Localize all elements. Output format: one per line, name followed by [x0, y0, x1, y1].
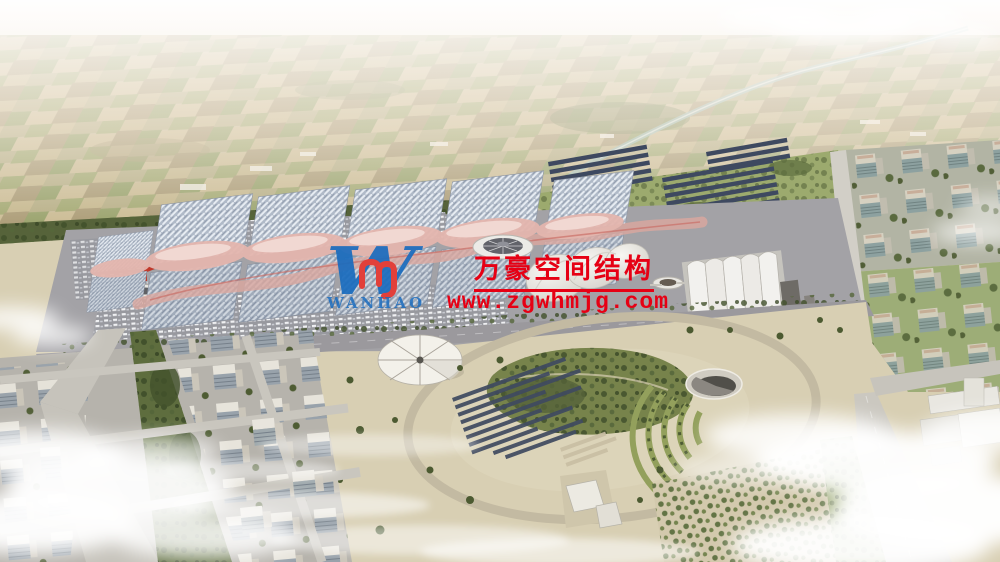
watermark-company-name: 万豪空间结构: [474, 247, 654, 292]
watermark-website-url: www.zgwhmjg.com: [447, 289, 669, 315]
aerial-rendering: W WANHAO 万豪空间结构 www.zgwhmjg.com: [0, 0, 1000, 562]
crater-pavilion: [686, 369, 742, 399]
logo-subtext: WANHAO: [322, 294, 430, 312]
